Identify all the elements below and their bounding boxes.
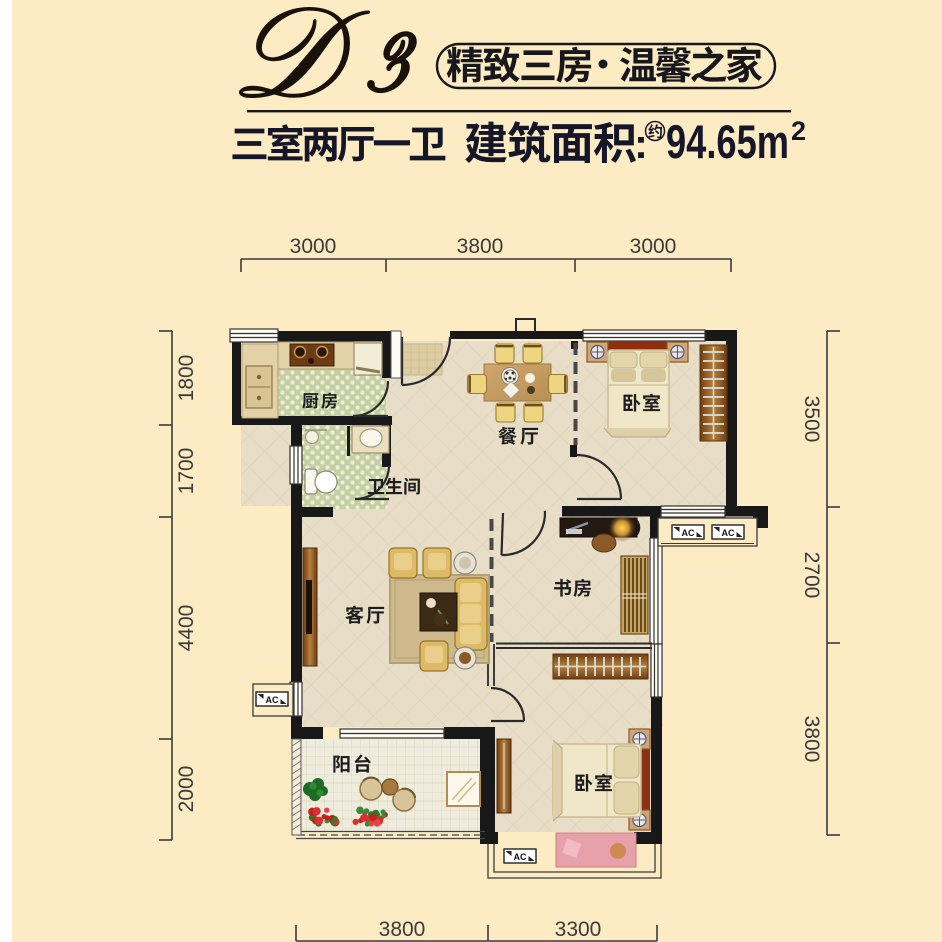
svg-text:2: 2	[791, 116, 806, 146]
svg-text:3800: 3800	[379, 918, 426, 941]
svg-text:3800: 3800	[457, 235, 504, 258]
svg-text:AC: AC	[682, 528, 695, 538]
svg-text:AC: AC	[266, 695, 279, 705]
svg-text:3000: 3000	[630, 235, 677, 258]
svg-text:94.65m: 94.65m	[666, 115, 789, 168]
svg-text:2700: 2700	[800, 552, 823, 599]
svg-text:1700: 1700	[175, 448, 198, 495]
svg-text:3300: 3300	[555, 918, 602, 941]
svg-text:3500: 3500	[800, 396, 823, 443]
svg-text:1800: 1800	[175, 355, 198, 402]
svg-text:2000: 2000	[175, 766, 198, 813]
svg-text:3000: 3000	[290, 235, 337, 258]
svg-text:4400: 4400	[175, 605, 198, 652]
svg-text:AC: AC	[514, 852, 527, 862]
svg-text:3800: 3800	[800, 716, 823, 763]
svg-text:AC: AC	[722, 528, 735, 538]
